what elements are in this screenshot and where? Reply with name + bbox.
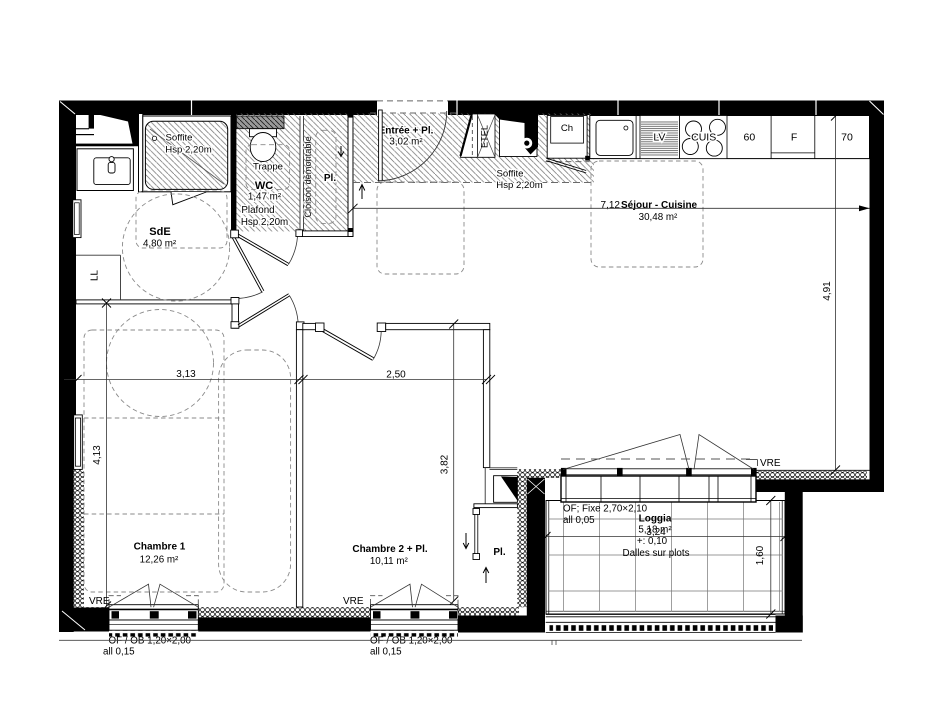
svg-text:CUIS: CUIS — [691, 132, 716, 144]
svg-text:70: 70 — [841, 132, 853, 144]
svg-text:Hsp 2,20m: Hsp 2,20m — [241, 217, 288, 228]
svg-text:SdE: SdE — [149, 226, 170, 238]
svg-text:Chambre 2 + Pl.: Chambre 2 + Pl. — [352, 544, 428, 555]
svg-text:LL: LL — [90, 270, 101, 281]
svg-text:Chambre 1: Chambre 1 — [134, 542, 186, 553]
svg-text:60: 60 — [744, 132, 756, 144]
svg-text:3,82: 3,82 — [440, 454, 451, 474]
svg-text:OF; Fixe 2,70×2,10: OF; Fixe 2,70×2,10 — [563, 504, 648, 515]
svg-text:30,48 m²: 30,48 m² — [639, 212, 678, 223]
svg-text:ETEL: ETEL — [480, 125, 490, 148]
svg-text:3,02 m²: 3,02 m² — [389, 137, 423, 148]
svg-text:7,12: 7,12 — [601, 200, 621, 211]
svg-text:Ch: Ch — [561, 123, 573, 134]
svg-text:WC: WC — [255, 180, 273, 192]
svg-text:3,13: 3,13 — [176, 369, 196, 380]
svg-text:Pl.: Pl. — [493, 547, 505, 558]
svg-text:4,91: 4,91 — [822, 281, 833, 301]
svg-text:1,47 m²: 1,47 m² — [248, 192, 282, 203]
svg-text:Plafond: Plafond — [241, 205, 274, 216]
svg-text:OF / OB 1,20×2,00: OF / OB 1,20×2,00 — [109, 636, 192, 647]
svg-text:LV: LV — [653, 132, 665, 144]
svg-text:Soffite: Soffite — [496, 169, 523, 180]
svg-text:all 0,15: all 0,15 — [370, 647, 402, 658]
svg-text:12,26 m²: 12,26 m² — [140, 555, 179, 566]
svg-text:+: 0,10: +: 0,10 — [637, 536, 668, 547]
svg-text:Entrée + Pl.: Entrée + Pl. — [379, 126, 434, 137]
svg-text:1,60: 1,60 — [755, 545, 766, 565]
svg-text:4,80 m²: 4,80 m² — [143, 239, 177, 250]
svg-text:F: F — [791, 132, 797, 144]
svg-text:Loggia: Loggia — [639, 514, 672, 525]
svg-text:Hsp 2,20m: Hsp 2,20m — [496, 180, 542, 191]
svg-text:Pl.: Pl. — [324, 173, 336, 184]
svg-text:all 0,15: all 0,15 — [103, 647, 135, 658]
svg-text:VRE: VRE — [760, 458, 781, 469]
svg-text:Hsp 2,20m: Hsp 2,20m — [165, 145, 211, 156]
svg-text:5,18 m²: 5,18 m² — [638, 525, 672, 536]
svg-text:OF / OB 1,20×2,00: OF / OB 1,20×2,00 — [370, 636, 453, 647]
svg-text:Trappe: Trappe — [253, 162, 283, 173]
svg-text:4,13: 4,13 — [92, 445, 103, 465]
svg-text:Séjour - Cuisine: Séjour - Cuisine — [621, 200, 698, 211]
svg-text:Dalles sur plots: Dalles sur plots — [623, 548, 690, 559]
svg-text:VRE: VRE — [343, 596, 364, 607]
svg-text:VRE: VRE — [89, 596, 110, 607]
svg-text:10,11 m²: 10,11 m² — [370, 556, 409, 567]
svg-text:Soffite: Soffite — [165, 133, 192, 144]
svg-text:2,50: 2,50 — [386, 370, 406, 381]
svg-text:all 0,05: all 0,05 — [563, 515, 595, 526]
